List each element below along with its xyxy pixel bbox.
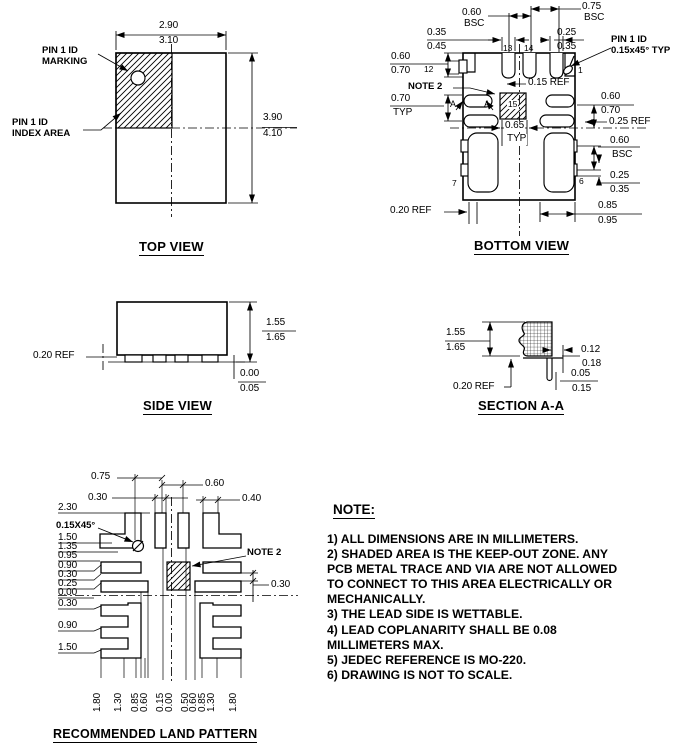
dim-060-bsc-top-val: 0.60	[462, 8, 481, 19]
dim-030-top: 0.30	[88, 493, 107, 504]
dim-corner-pad-max: 0.95	[598, 216, 617, 227]
dim-060-top: 0.60	[205, 479, 224, 490]
dim-step-max: 0.15	[572, 384, 591, 395]
pin1-index-label-line2: INDEX AREA	[12, 129, 70, 139]
pin-7-corner-pad	[468, 133, 498, 192]
side-view-body	[117, 302, 227, 355]
dim-060-bsc-right-unit: BSC	[612, 150, 632, 161]
dim-075-bsc-val: 0.75	[582, 2, 601, 13]
dim-030-right: 0.30	[271, 580, 290, 591]
chamfer-callout: 0.15X45°	[56, 521, 95, 531]
pin1-marking-label-line1: PIN 1 ID	[42, 46, 78, 56]
bottom-view-title: BOTTOM VIEW	[474, 238, 569, 255]
dim-lead-right-max: 0.70	[601, 106, 620, 117]
dim-060-bsc-right-val: 0.60	[610, 136, 629, 147]
dim-075-bsc-unit: BSC	[584, 13, 604, 24]
note-line: 5) JEDEC REFERENCE IS MO-220.	[327, 653, 689, 668]
dim-pitch-left-typ: TYP	[393, 108, 412, 119]
dim-slot-width-min: 0.35	[427, 28, 446, 39]
pin1-id-label-line2: 0.15x45° TYP	[611, 46, 670, 56]
side-view-drawing	[86, 302, 296, 382]
land-pad-bottom-right	[200, 603, 241, 658]
note-line: 3) THE LEAD SIDE IS WETTABLE.	[327, 607, 689, 622]
dim-height-min: 1.55	[446, 328, 465, 339]
note-line: 4) LEAD COPLANARITY SHALL BE 0.08	[327, 623, 689, 638]
dim-lead-left-min: 0.60	[391, 52, 410, 63]
dim-000-bottom: 0.00	[165, 693, 176, 712]
pin1-marking-circle	[131, 71, 145, 85]
section-aa-title: SECTION A-A	[478, 398, 564, 415]
dim-slot-width-max: 0.45	[427, 42, 446, 53]
pin1-marking-label-line2: MARKING	[42, 57, 87, 67]
dim-flank-min: 0.12	[581, 345, 600, 356]
pin-6-corner-pad	[544, 133, 574, 192]
pin-12-label: 12	[424, 65, 433, 74]
note-line: 1) ALL DIMENSIONS ARE IN MILLIMETERS.	[327, 532, 689, 547]
dim-body-width-max: 3.10	[159, 36, 178, 47]
pin-6-label: 6	[579, 177, 584, 186]
dim-180-bottom-left: 1.80	[93, 693, 104, 712]
pin-7-label: 7	[452, 179, 457, 188]
dim-height-max: 1.65	[446, 343, 465, 354]
dim-notch-height-min: 0.25	[610, 171, 629, 182]
pin1-index-hatch-area	[116, 53, 172, 128]
note-heading: NOTE:	[333, 502, 375, 519]
dim-lead-left-max: 0.70	[391, 66, 410, 77]
dim-standoff-max: 0.05	[240, 384, 259, 395]
dim-065-typ-val: 0.65	[504, 121, 525, 132]
section-arrow-a-right: A	[484, 100, 490, 109]
note-line: MILLIMETERS MAX.	[327, 638, 689, 653]
section-lead	[547, 358, 552, 381]
top-view-title: TOP VIEW	[139, 239, 204, 256]
note-line: MECHANICALLY.	[327, 592, 689, 607]
land-pad-top-right	[203, 513, 241, 548]
section-aa-dimensions	[445, 322, 598, 390]
land-pattern-drawing	[58, 474, 298, 684]
note2-callout: NOTE 2	[408, 82, 442, 92]
dim-step-min: 0.05	[571, 369, 590, 380]
dim-body-height-max: 4.10	[263, 129, 282, 140]
dim-060-bsc-top-unit: BSC	[464, 19, 484, 30]
dim-130-bottom-right: 1.30	[207, 693, 218, 712]
section-arrow-a-left: A	[450, 100, 456, 109]
dim-030-lower: 0.30	[58, 599, 77, 610]
note-line: 6) DRAWING IS NOT TO SCALE.	[327, 668, 689, 683]
top-view-drawing	[83, 31, 297, 217]
land-pad-bottom-left	[101, 603, 141, 658]
dim-020-ref: 0.20 REF	[453, 382, 494, 393]
note2-callout: NOTE 2	[247, 548, 281, 558]
dim-height-min: 1.55	[266, 318, 285, 329]
dim-015-ref: 0.15 REF	[528, 78, 569, 89]
dim-090-lower: 0.90	[58, 621, 77, 632]
dim-pin1-slot-min: 0.25	[557, 28, 576, 39]
dim-notch-height-max: 0.35	[610, 185, 629, 196]
dim-020-ref: 0.20 REF	[33, 351, 74, 362]
dim-standoff-min: 0.00	[240, 369, 259, 380]
dim-020-ref-bottom: 0.20 REF	[390, 206, 431, 217]
dim-230-left: 2.30	[58, 503, 77, 514]
pin-13-slot	[502, 53, 515, 78]
dim-040-top: 0.40	[242, 494, 261, 505]
pin-13-label: 13	[503, 44, 512, 53]
land-keepout-pad	[167, 562, 190, 590]
pin-14-slot	[523, 53, 536, 78]
pin1-index-label-line1: PIN 1 ID	[12, 118, 48, 128]
dim-000-left: 0.00	[58, 588, 77, 599]
note-line: 2) SHADED AREA IS THE KEEP-OUT ZONE. ANY	[327, 547, 689, 562]
note-line: PCB METAL TRACE AND VIA ARE NOT ALLOWED	[327, 562, 689, 577]
dim-065-typ-unit: TYP	[506, 134, 527, 145]
dim-180-bottom-right: 1.80	[229, 693, 240, 712]
dim-body-width-min: 2.90	[159, 21, 178, 32]
dim-lead-right-min: 0.60	[601, 92, 620, 103]
note-list: 1) ALL DIMENSIONS ARE IN MILLIMETERS.2) …	[327, 532, 689, 683]
pin1-id-label-line1: PIN 1 ID	[611, 35, 647, 45]
dim-pitch-left-val: 0.70	[391, 94, 410, 105]
dim-150-lower: 1.50	[58, 643, 77, 654]
dim-025-ref-right: 0.25 REF	[609, 117, 650, 128]
dim-130-bottom-left: 1.30	[114, 693, 125, 712]
dim-pin1-slot-max: 0.35	[557, 42, 576, 53]
pin-1-label: 1	[578, 66, 583, 75]
land-pattern-title: RECOMMENDED LAND PATTERN	[53, 727, 257, 743]
dim-060-bottom-left: 0.60	[140, 693, 151, 712]
pin-14-label: 14	[524, 44, 533, 53]
dim-corner-pad-min: 0.85	[598, 201, 617, 212]
section-aa-drawing	[445, 322, 598, 390]
note-line: TO CONNECT TO THIS AREA ELECTRICALLY OR	[327, 577, 689, 592]
dim-height-max: 1.65	[266, 333, 285, 344]
dim-body-height-min: 3.90	[263, 113, 282, 124]
dim-075-top: 0.75	[91, 472, 110, 483]
section-body-hatch	[519, 322, 552, 356]
side-view-title: SIDE VIEW	[143, 398, 212, 415]
package-drawing-page: 2.903.103.904.10PIN 1 IDMARKINGPIN 1 IDI…	[0, 0, 692, 754]
pin-15-label: 15	[507, 100, 518, 109]
